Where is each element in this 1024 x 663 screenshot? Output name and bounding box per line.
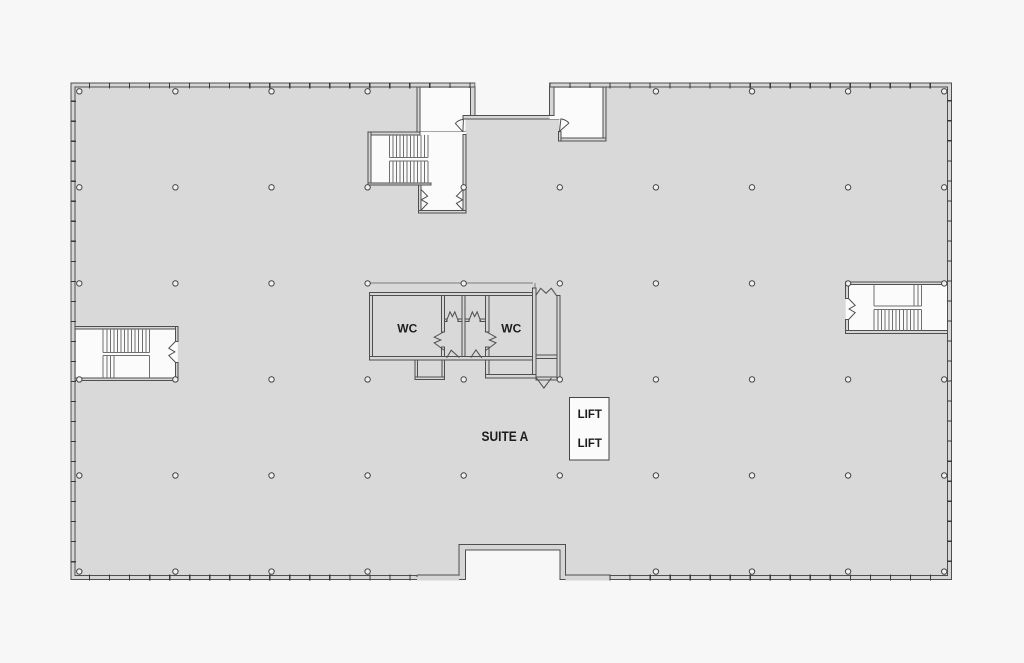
svg-text:LIFT: LIFT (578, 436, 603, 450)
svg-text:WC: WC (397, 321, 417, 335)
svg-text:WC: WC (501, 321, 521, 335)
svg-text:SUITE A: SUITE A (482, 429, 529, 444)
svg-text:LIFT: LIFT (578, 407, 603, 421)
